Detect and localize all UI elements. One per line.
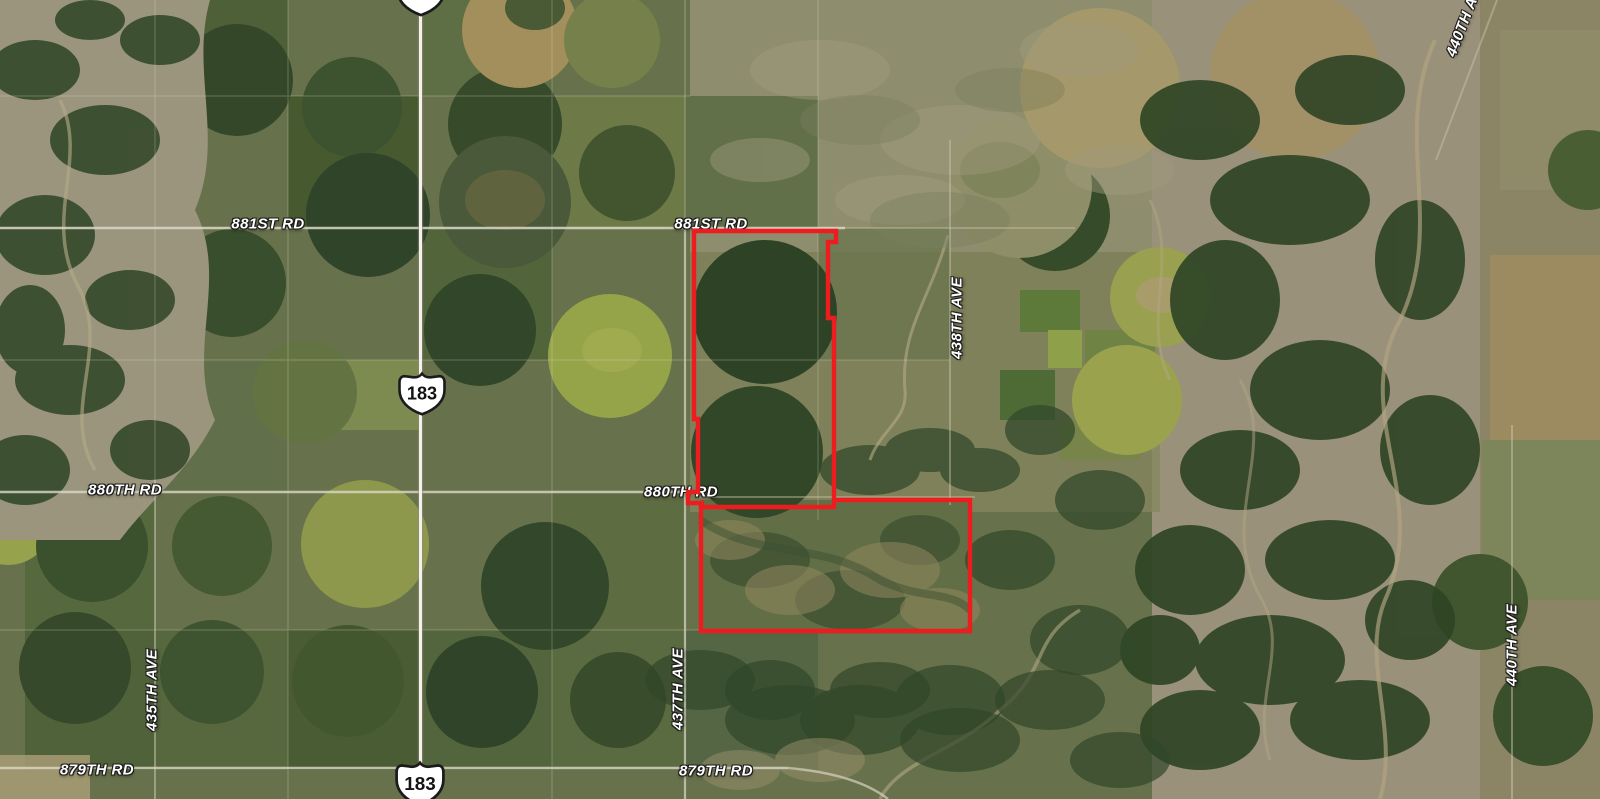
road-label-440th-ave: 440TH AVE <box>1504 604 1521 686</box>
road-label-879th-rd-west: 879TH RD <box>60 762 134 779</box>
road-label-437th-ave: 437TH AVE <box>670 648 687 730</box>
satellite-imagery <box>0 0 1600 799</box>
road-label-880th-rd-center: 880TH RD <box>644 484 718 501</box>
road-label-438th-ave: 438TH AVE <box>949 277 966 359</box>
road-label-879th-rd-center: 879TH RD <box>679 763 753 780</box>
road-label-880th-rd-west: 880TH RD <box>88 482 162 499</box>
us-highway-183-shield-bottom: 183 <box>393 760 447 799</box>
shield-number: 183 <box>404 774 436 795</box>
us-highway-183-shield-top: 183 <box>394 0 448 17</box>
shield-number: 183 <box>405 0 437 5</box>
canyon-terrain-west <box>0 0 215 540</box>
satellite-map[interactable]: 881ST RD 881ST RD 880TH RD 880TH RD 879T… <box>0 0 1600 799</box>
us-highway-183-shield-middle: 183 <box>396 371 448 416</box>
road-label-435th-ave: 435TH AVE <box>144 649 161 731</box>
road-label-881st-rd-west: 881ST RD <box>231 216 304 233</box>
shield-number: 183 <box>407 384 437 404</box>
